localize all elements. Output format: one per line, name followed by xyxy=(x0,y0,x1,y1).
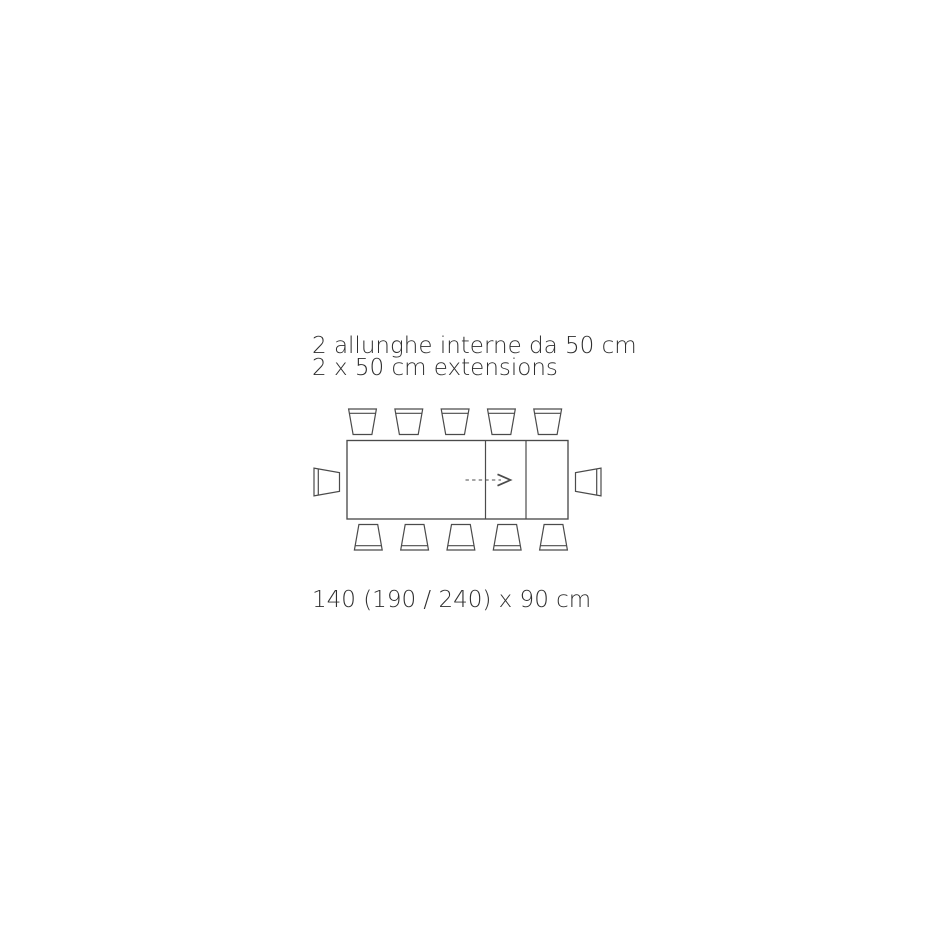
chair-icon-top-2 xyxy=(395,409,423,435)
chair-icon-bottom-5 xyxy=(540,525,568,551)
chair-icon-bottom-3 xyxy=(447,525,475,551)
chair-icon-top-4 xyxy=(488,409,516,435)
table-plan-drawing xyxy=(295,395,620,570)
chair-icon-bottom-2 xyxy=(401,525,429,551)
caption-line-english: 2 x 50 cm extensions xyxy=(312,357,637,379)
extensions-caption: 2 allunghe interne da 50 cm 2 x 50 cm ex… xyxy=(312,335,637,379)
plan-strokes xyxy=(314,409,601,550)
chair-icon-top-1 xyxy=(349,409,377,435)
product-dimension-diagram: 2 allunghe interne da 50 cm 2 x 50 cm ex… xyxy=(0,0,950,950)
chair-icon-top-3 xyxy=(441,409,469,435)
chair-icon-bottom-1 xyxy=(354,525,382,551)
chair-icon-right-end xyxy=(576,468,602,496)
table-top-outline xyxy=(347,441,568,520)
dimensions-label: 140 (190 / 240) x 90 cm xyxy=(312,589,591,611)
caption-line-italian: 2 allunghe interne da 50 cm xyxy=(312,335,637,357)
chair-icon-left-end xyxy=(314,468,340,496)
chair-icon-top-5 xyxy=(534,409,562,435)
chair-icon-bottom-4 xyxy=(493,525,521,551)
